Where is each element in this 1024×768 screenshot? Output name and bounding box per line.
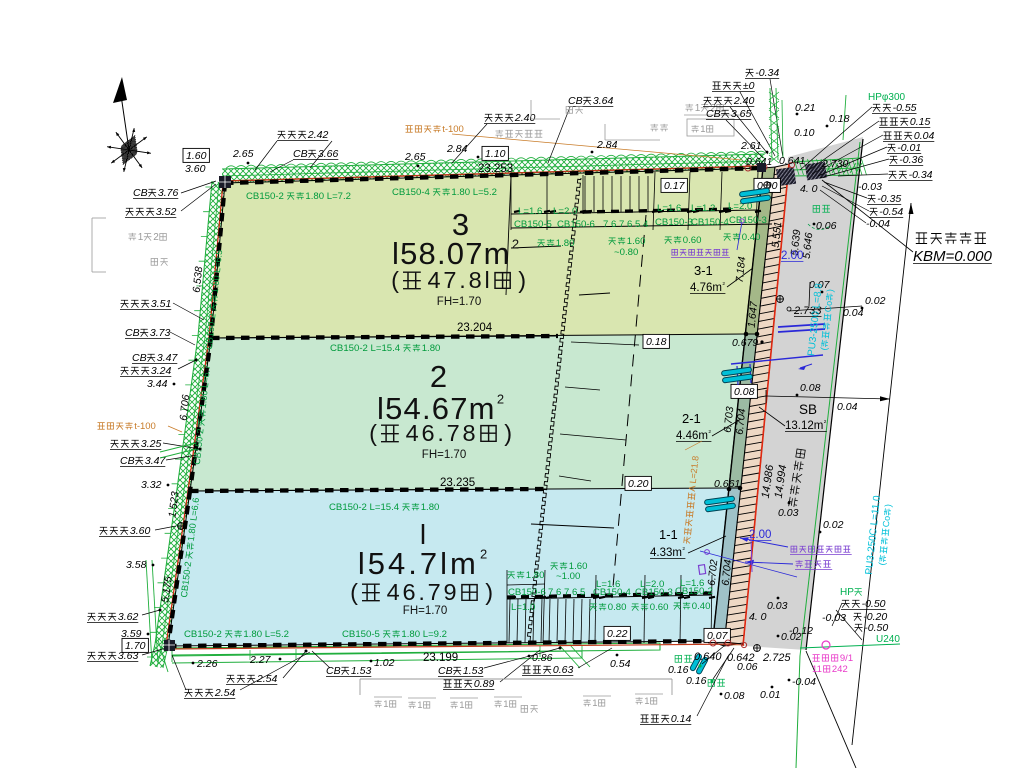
svg-text:3.51: 3.51 — [151, 298, 171, 310]
svg-text:2.725: 2.725 — [762, 652, 791, 664]
svg-text:4. 0: 4. 0 — [749, 611, 767, 623]
svg-text:2.40: 2.40 — [514, 112, 536, 124]
svg-text:CB150-4: CB150-4 — [392, 187, 431, 198]
svg-text:46.78: 46.78 — [406, 420, 479, 446]
svg-text:3.52: 3.52 — [156, 206, 177, 218]
svg-text:2.730: 2.730 — [821, 158, 848, 170]
svg-text:CB: CB — [132, 352, 147, 364]
svg-text:): ) — [518, 267, 529, 293]
svg-text:-0.34: -0.34 — [909, 169, 933, 181]
svg-text:-0.54: -0.54 — [879, 206, 903, 218]
svg-text:(: ( — [350, 579, 361, 605]
svg-text:3.32: 3.32 — [141, 479, 162, 491]
svg-text:(: ( — [391, 267, 402, 293]
svg-text:2.84: 2.84 — [446, 143, 468, 155]
svg-text:CB150-2: CB150-2 — [184, 629, 222, 640]
svg-text:7 6 7 6 5: 7 6 7 6 5 — [548, 587, 585, 598]
svg-text:0.08: 0.08 — [734, 386, 755, 398]
svg-text:0.21: 0.21 — [795, 102, 815, 114]
svg-text:3.24: 3.24 — [151, 365, 172, 377]
svg-text:2-1: 2-1 — [682, 411, 701, 426]
svg-text:0.60: 0.60 — [650, 602, 669, 613]
svg-text:L=1.0: L=1.0 — [511, 602, 535, 613]
svg-text:2: 2 — [722, 281, 725, 287]
svg-text:23.199: 23.199 — [423, 652, 458, 664]
svg-text:2.00: 2.00 — [781, 250, 803, 262]
svg-text:2.54: 2.54 — [214, 687, 236, 699]
svg-text:46.79: 46.79 — [387, 579, 460, 605]
svg-text:-0.03: -0.03 — [858, 181, 882, 193]
svg-text:3.60: 3.60 — [130, 525, 151, 537]
svg-text:2.27: 2.27 — [249, 654, 272, 666]
svg-text:0.17: 0.17 — [664, 180, 686, 192]
svg-text:1.80 L=7.2: 1.80 L=7.2 — [305, 191, 351, 202]
svg-text:1.60: 1.60 — [186, 150, 207, 162]
svg-text:L=2.0: L=2.0 — [553, 206, 577, 217]
svg-text:2.00: 2.00 — [749, 529, 771, 541]
svg-text:242: 242 — [832, 664, 848, 675]
svg-text:3.47: 3.47 — [157, 352, 179, 364]
svg-text:0.60: 0.60 — [683, 235, 702, 246]
svg-text:0.80: 0.80 — [608, 602, 627, 613]
svg-text:CB150-5: CB150-5 — [514, 219, 552, 230]
svg-text:1: 1 — [700, 124, 705, 135]
svg-text:3.25: 3.25 — [141, 438, 162, 450]
svg-text:1.80: 1.80 — [421, 502, 440, 513]
svg-text:): ) — [485, 579, 496, 605]
svg-text:HP: HP — [840, 587, 854, 598]
svg-text:l58.07m: l58.07m — [392, 236, 511, 271]
svg-text:2: 2 — [480, 547, 487, 562]
svg-text:2: 2 — [682, 546, 685, 552]
svg-text:CB: CB — [133, 187, 148, 199]
svg-text:0.22: 0.22 — [607, 628, 628, 640]
svg-text:2: 2 — [430, 359, 448, 394]
svg-text:0.640: 0.640 — [694, 651, 722, 663]
svg-text:9/1: 9/1 — [840, 653, 853, 664]
svg-text:0.02: 0.02 — [781, 631, 802, 643]
svg-text:CB150-2: CB150-2 — [246, 191, 284, 202]
svg-text:2.84: 2.84 — [596, 139, 618, 151]
svg-text:3.63: 3.63 — [118, 650, 139, 662]
svg-text:-0.34: -0.34 — [755, 67, 779, 79]
svg-text:1.53: 1.53 — [463, 665, 484, 677]
svg-text:11: 11 — [812, 664, 822, 675]
svg-text:2.42: 2.42 — [307, 129, 329, 141]
svg-text:CB: CB — [706, 108, 721, 120]
svg-text:23.204: 23.204 — [457, 322, 493, 334]
svg-text:2.65: 2.65 — [404, 151, 426, 163]
svg-text:47.8l: 47.8l — [428, 267, 493, 293]
svg-text:~1.00: ~1.00 — [556, 571, 580, 582]
svg-text:CB150-6: CB150-6 — [508, 587, 546, 598]
svg-text:2: 2 — [708, 429, 711, 435]
svg-text:4.76m: 4.76m — [690, 282, 722, 294]
svg-text:~0.80: ~0.80 — [614, 247, 638, 258]
svg-text:0.08: 0.08 — [800, 382, 821, 394]
svg-text:CB: CB — [293, 148, 308, 160]
svg-text:CB: CB — [326, 665, 341, 677]
svg-text:2.26: 2.26 — [196, 658, 218, 670]
svg-text:0.06: 0.06 — [737, 661, 758, 673]
svg-text:1-1: 1-1 — [659, 527, 678, 542]
svg-text:1: 1 — [592, 698, 597, 709]
svg-text:3.58: 3.58 — [126, 559, 147, 571]
svg-text:0.02: 0.02 — [823, 519, 844, 531]
svg-text:1: 1 — [138, 232, 144, 243]
svg-text:0.16: 0.16 — [686, 675, 707, 687]
svg-text:U240: U240 — [876, 634, 900, 645]
svg-text:1.80 L=5.2: 1.80 L=5.2 — [451, 187, 497, 198]
svg-text:1: 1 — [695, 103, 701, 114]
svg-text:0.03: 0.03 — [767, 600, 788, 612]
svg-text:CB150-3: CB150-3 — [635, 587, 673, 598]
svg-text:7 6 7 6 5 4: 7 6 7 6 5 4 — [603, 219, 649, 230]
svg-text:3.65: 3.65 — [731, 108, 752, 120]
svg-text:23.253: 23.253 — [478, 163, 513, 175]
svg-text:1.80 L=9.2: 1.80 L=9.2 — [401, 629, 447, 640]
svg-text:2: 2 — [153, 232, 159, 243]
svg-text:L=1.6: L=1.6 — [657, 203, 681, 214]
svg-text:13.12m: 13.12m — [785, 420, 823, 432]
svg-text:CB150-3: CB150-3 — [655, 217, 693, 228]
svg-text:3.76: 3.76 — [158, 187, 179, 199]
svg-text:2: 2 — [497, 392, 504, 407]
svg-text:): ) — [504, 420, 515, 446]
svg-text:CB150-5: CB150-5 — [342, 629, 380, 640]
svg-text:0.03: 0.03 — [778, 507, 799, 519]
svg-text:3-1: 3-1 — [694, 263, 713, 278]
svg-text:KBM=0.000: KBM=0.000 — [913, 248, 992, 265]
svg-text:0.04: 0.04 — [837, 401, 858, 413]
svg-text:2.65: 2.65 — [232, 148, 254, 160]
svg-text:4.46m: 4.46m — [676, 430, 708, 442]
svg-text:Co: Co — [823, 300, 834, 312]
svg-text:3.60: 3.60 — [185, 163, 206, 175]
svg-text:FH=1.70: FH=1.70 — [422, 449, 466, 461]
svg-text:0.18: 0.18 — [646, 336, 667, 348]
svg-text:0.10: 0.10 — [794, 127, 815, 139]
svg-text:0.04: 0.04 — [843, 307, 864, 319]
svg-text:CB150-2 L=15.4: CB150-2 L=15.4 — [330, 343, 401, 354]
svg-text:0.89: 0.89 — [474, 678, 495, 690]
svg-text:1: 1 — [644, 696, 649, 707]
svg-text:1: 1 — [417, 700, 422, 711]
svg-text:1.53: 1.53 — [351, 665, 372, 677]
svg-text:SB: SB — [799, 402, 817, 417]
svg-text:CB: CB — [120, 455, 135, 467]
svg-text:CB150-2 L=15.4: CB150-2 L=15.4 — [329, 502, 400, 513]
svg-text:0.641: 0.641 — [779, 155, 805, 167]
svg-text:1.02: 1.02 — [374, 657, 395, 669]
svg-text:1.10: 1.10 — [485, 148, 506, 160]
svg-text:1: 1 — [503, 699, 508, 710]
svg-text:0.15: 0.15 — [910, 116, 931, 128]
svg-text:4. 0: 4. 0 — [800, 183, 818, 195]
svg-text:0.40: 0.40 — [742, 232, 761, 243]
svg-text:-0.36: -0.36 — [899, 154, 923, 166]
svg-text:(: ( — [369, 420, 380, 446]
svg-text:L=1.6: L=1.6 — [518, 206, 542, 217]
svg-text:0.63: 0.63 — [553, 664, 574, 676]
svg-text:1.60: 1.60 — [627, 236, 646, 247]
svg-text:3.62: 3.62 — [118, 611, 139, 623]
svg-text:4.33m: 4.33m — [650, 547, 682, 559]
svg-text:0.07: 0.07 — [707, 630, 729, 642]
svg-text:0.679: 0.679 — [732, 337, 758, 349]
svg-text:-0.35: -0.35 — [877, 193, 901, 205]
svg-text:FH=1.70: FH=1.70 — [437, 296, 481, 308]
svg-text:Co: Co — [881, 515, 892, 527]
svg-text:0.54: 0.54 — [610, 658, 631, 670]
svg-text:1: 1 — [459, 700, 464, 711]
svg-text:±0: ±0 — [743, 80, 755, 92]
svg-text:l54.7lm: l54.7lm — [358, 546, 479, 581]
svg-text:2.40: 2.40 — [733, 95, 755, 107]
svg-text:CB150-4: CB150-4 — [593, 587, 632, 598]
svg-text:1.80 L=5.2: 1.80 L=5.2 — [243, 629, 289, 640]
svg-text:CB: CB — [568, 95, 583, 107]
svg-text:-0.01: -0.01 — [897, 142, 921, 154]
svg-text:2: 2 — [824, 419, 827, 425]
svg-text:FH=1.70: FH=1.70 — [403, 605, 447, 617]
svg-text:23.235: 23.235 — [440, 477, 475, 489]
svg-text:0.14: 0.14 — [671, 713, 692, 725]
svg-text:0.40: 0.40 — [692, 601, 711, 612]
svg-text:-0.50: -0.50 — [864, 622, 888, 634]
svg-text:0.06: 0.06 — [816, 220, 837, 232]
svg-text:t-100: t-100 — [442, 124, 464, 135]
svg-text:CB: CB — [125, 327, 140, 339]
svg-text:1.80: 1.80 — [526, 570, 545, 581]
svg-text:0.08: 0.08 — [724, 690, 745, 702]
svg-text:1: 1 — [383, 699, 388, 710]
svg-text:0.18: 0.18 — [829, 113, 850, 125]
svg-text:L=1.2: L=1.2 — [691, 203, 715, 214]
svg-text:0.01: 0.01 — [760, 689, 780, 701]
svg-text:-0.55: -0.55 — [893, 102, 917, 114]
svg-text:1.80: 1.80 — [422, 343, 441, 354]
svg-text:0.04: 0.04 — [914, 130, 935, 142]
svg-text:CB150-6: CB150-6 — [557, 219, 595, 230]
svg-text:-0.50: -0.50 — [862, 598, 886, 610]
svg-text:t-100: t-100 — [134, 421, 156, 432]
svg-text:3.44: 3.44 — [147, 378, 168, 390]
svg-text:CB: CB — [438, 665, 453, 677]
svg-text:-0.04: -0.04 — [792, 676, 816, 688]
svg-text:CB150-4: CB150-4 — [691, 217, 730, 228]
svg-text:2: 2 — [512, 237, 519, 252]
svg-text:3.64: 3.64 — [593, 95, 614, 107]
svg-text:1.80: 1.80 — [556, 238, 575, 249]
svg-text:2.54: 2.54 — [256, 673, 278, 685]
svg-text:0.02: 0.02 — [865, 295, 886, 307]
svg-text:CB150-2: CB150-2 — [675, 586, 713, 597]
svg-text:CB150-3: CB150-3 — [729, 215, 767, 226]
svg-text:0.20: 0.20 — [628, 478, 649, 490]
svg-text:3.66: 3.66 — [318, 148, 339, 160]
svg-text:3.73: 3.73 — [150, 327, 171, 339]
